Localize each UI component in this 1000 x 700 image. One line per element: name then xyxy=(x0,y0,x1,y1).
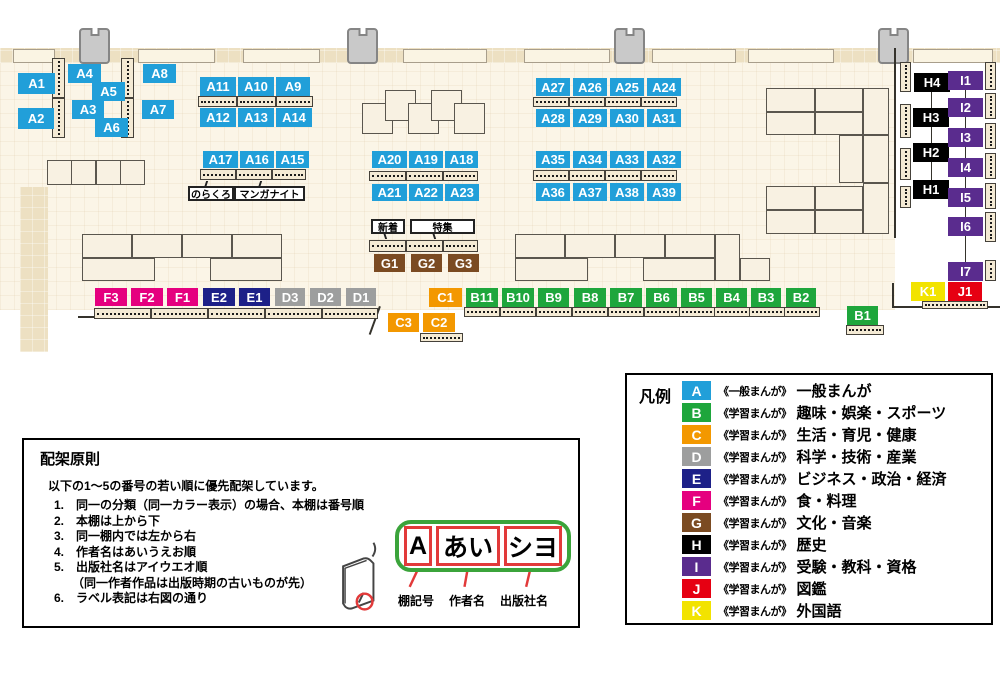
legend-series: 《学習まんが》 xyxy=(718,515,792,531)
shelf-unit xyxy=(369,171,406,181)
shelf-block xyxy=(82,234,132,258)
legend-series: 《学習まんが》 xyxy=(718,405,792,421)
shelf-chip-B6: B6 xyxy=(646,288,677,307)
shelf-chip-A37: A37 xyxy=(573,183,607,201)
map-callout: 特集 xyxy=(410,219,475,234)
shelf-unit xyxy=(276,96,313,107)
shelf-chip-A1: A1 xyxy=(18,73,55,94)
shelf-chip-A35: A35 xyxy=(536,151,570,168)
shelf-chip-I5: I5 xyxy=(948,188,983,207)
shelf-chip-H2: H2 xyxy=(913,143,949,162)
shelf-chip-B9: B9 xyxy=(538,288,569,307)
shelf-chip-A28: A28 xyxy=(536,109,570,127)
shelf-unit xyxy=(322,308,378,319)
legend-item-F: F《学習まんが》食・料理 xyxy=(682,491,947,510)
shelf-chip-C3: C3 xyxy=(388,313,419,332)
map-callout: のらくろ xyxy=(188,186,234,201)
shelf-unit xyxy=(846,325,884,335)
legend-chip-D: D xyxy=(682,447,711,466)
shelf-block xyxy=(815,186,863,210)
shelf-block xyxy=(515,258,588,281)
spine-label-box: あい xyxy=(436,526,500,566)
shelf-unit xyxy=(369,240,406,252)
shelf-unit xyxy=(236,169,272,180)
shelf-chip-A31: A31 xyxy=(647,109,681,127)
principle-item: 2. 本棚は上から下 xyxy=(54,514,364,530)
legend-chip-A: A xyxy=(682,381,711,400)
shelf-chip-A12: A12 xyxy=(200,108,236,127)
shelf-block xyxy=(839,135,863,183)
legend-category: 文化・音楽 xyxy=(797,512,872,533)
shelf-chip-A10: A10 xyxy=(238,77,274,96)
shelf-chip-A36: A36 xyxy=(536,183,570,201)
shelf-unit xyxy=(569,97,605,107)
legend-chip-G: G xyxy=(682,513,711,532)
shelf-chip-G2: G2 xyxy=(411,254,442,272)
principles-title: 配架原則 xyxy=(40,448,100,469)
shelf-chip-I2: I2 xyxy=(948,98,983,117)
shelf-block xyxy=(715,234,740,281)
shelf-chip-D1: D1 xyxy=(346,288,376,306)
shelf-chip-B11: B11 xyxy=(466,288,498,307)
shelf-chip-I7: I7 xyxy=(948,262,983,281)
shelf-chip-B7: B7 xyxy=(610,288,642,307)
shelf-unit xyxy=(985,93,996,119)
shelf-block xyxy=(232,234,282,258)
principles-box: 配架原則 以下の1～5の番号の若い順に優先配架しています。 1. 同一の分類（同… xyxy=(22,438,580,628)
shelf-block xyxy=(863,135,889,183)
pillar xyxy=(79,28,110,64)
shelf-unit xyxy=(420,333,463,342)
shelf-chip-I1: I1 xyxy=(948,71,983,90)
shelf-chip-A23: A23 xyxy=(445,184,479,201)
shelf-unit xyxy=(265,308,322,319)
principle-item: 1. 同一の分類（同一カラー表示）の場合、本棚は番号順 xyxy=(54,498,364,514)
legend-series: 《学習まんが》 xyxy=(718,449,792,465)
label-annotation: 出版社名 xyxy=(500,592,548,609)
shelf-unit xyxy=(679,307,715,317)
shelf-chip-A32: A32 xyxy=(647,151,681,168)
label-annotation: 作者名 xyxy=(449,592,485,609)
legend-category: 受験・教科・資格 xyxy=(797,556,917,577)
shelf-block xyxy=(132,234,182,258)
shelf-chip-A14: A14 xyxy=(276,108,312,127)
label-annotations: 棚記号作者名出版社名 xyxy=(398,592,548,609)
legend-rows: A《一般まんが》一般まんがB《学習まんが》趣味・娯楽・スポーツC《学習まんが》生… xyxy=(682,381,947,620)
shelf-chip-D3: D3 xyxy=(275,288,305,306)
principles-list: 1. 同一の分類（同一カラー表示）の場合、本棚は番号順2. 本棚は上から下3. … xyxy=(54,498,364,607)
legend-item-H: H《学習まんが》歴史 xyxy=(682,535,947,554)
shelf-chip-A17: A17 xyxy=(203,151,238,168)
legend-category: 外国語 xyxy=(797,600,842,621)
shelf-chip-A34: A34 xyxy=(573,151,607,168)
legend-series: 《学習まんが》 xyxy=(718,471,792,487)
shelf-chip-A24: A24 xyxy=(647,78,681,96)
shelf-chip-H3: H3 xyxy=(913,108,949,127)
shelf-chip-A11: A11 xyxy=(200,77,236,96)
shelf-chip-E1: E1 xyxy=(239,288,270,306)
legend-item-G: G《学習まんが》文化・音楽 xyxy=(682,513,947,532)
pillar xyxy=(614,28,645,64)
shelf-chip-I4: I4 xyxy=(948,158,983,177)
spine-label: Aあいシヨ xyxy=(395,520,571,572)
shelf-block xyxy=(515,234,565,258)
shelf-unit xyxy=(985,153,996,179)
shelf-unit xyxy=(605,170,641,181)
shelf-block xyxy=(182,234,232,258)
principle-item: 5. 出版社名はアイウエオ順 xyxy=(54,560,364,576)
legend-chip-B: B xyxy=(682,403,711,422)
legend-category: 歴史 xyxy=(797,534,827,555)
shelf-unit xyxy=(533,170,569,181)
legend-category: 図鑑 xyxy=(797,578,827,599)
shelf-chip-A39: A39 xyxy=(647,183,681,201)
legend-chip-H: H xyxy=(682,535,711,554)
shelf-unit xyxy=(406,240,443,252)
shelf-unit xyxy=(443,171,478,181)
shelf-block xyxy=(210,258,282,281)
shelf-unit xyxy=(644,307,680,317)
shelf-chip-A16: A16 xyxy=(240,151,274,168)
shelf-chip-B8: B8 xyxy=(574,288,606,307)
shelf-unit xyxy=(900,186,911,208)
legend-chip-I: I xyxy=(682,557,711,576)
shelf-chip-B4: B4 xyxy=(716,288,747,307)
shelf-chip-A4: A4 xyxy=(68,64,101,83)
shelf-chip-C2: C2 xyxy=(423,313,455,332)
legend-category: 生活・育児・健康 xyxy=(797,424,917,445)
shelf-unit xyxy=(749,307,785,317)
shelf-block xyxy=(82,258,155,281)
shelf-unit xyxy=(985,260,996,281)
shelf-block xyxy=(815,112,863,135)
shelf-block xyxy=(454,103,485,134)
shelf-chip-I3: I3 xyxy=(948,128,983,147)
shelf-block xyxy=(766,112,815,135)
shelf-chip-A20: A20 xyxy=(372,151,407,168)
shelf-chip-B1: B1 xyxy=(847,306,878,325)
shelf-chip-A18: A18 xyxy=(445,151,478,168)
wall-line xyxy=(78,316,95,318)
legend-chip-J: J xyxy=(682,579,711,598)
spine-label-box: シヨ xyxy=(504,526,562,566)
shelf-unit xyxy=(985,123,996,149)
shelf-chip-A27: A27 xyxy=(536,78,570,96)
shelf-unit xyxy=(900,104,911,138)
wall-line xyxy=(894,48,896,238)
legend-item-K: K《学習まんが》外国語 xyxy=(682,601,947,620)
shelf-block xyxy=(643,258,715,281)
legend-box: 凡例 A《一般まんが》一般まんがB《学習まんが》趣味・娯楽・スポーツC《学習まん… xyxy=(625,373,993,625)
shelf-block xyxy=(863,183,889,234)
shelf-chip-C1: C1 xyxy=(429,288,462,307)
wall-line xyxy=(892,283,894,308)
shelf-chip-A30: A30 xyxy=(610,109,644,127)
shelf-unit xyxy=(536,307,572,317)
shelf-chip-A6: A6 xyxy=(95,118,128,137)
doorway xyxy=(13,49,55,63)
wall-line xyxy=(931,82,932,192)
shelf-unit xyxy=(533,97,569,107)
shelf-unit xyxy=(608,307,644,317)
legend-chip-C: C xyxy=(682,425,711,444)
shelf-block xyxy=(71,160,96,185)
shelf-unit xyxy=(237,96,276,107)
shelf-block xyxy=(665,234,715,258)
shelf-chip-A8: A8 xyxy=(143,64,176,83)
doorway xyxy=(524,49,610,63)
map-callout: 新着 xyxy=(371,219,405,234)
doorway xyxy=(138,49,215,63)
legend-chip-E: E xyxy=(682,469,711,488)
shelf-unit xyxy=(900,62,911,92)
wall-band xyxy=(20,187,48,352)
shelf-unit xyxy=(985,62,996,90)
shelf-unit xyxy=(985,212,996,242)
shelf-unit xyxy=(200,169,236,180)
shelf-chip-D2: D2 xyxy=(310,288,341,306)
shelf-chip-G1: G1 xyxy=(374,254,405,272)
shelf-unit xyxy=(922,301,988,309)
shelf-block xyxy=(565,234,615,258)
shelf-unit xyxy=(641,97,677,107)
shelf-chip-A21: A21 xyxy=(372,184,407,201)
shelf-block xyxy=(47,160,72,185)
legend-series: 《学習まんが》 xyxy=(718,427,792,443)
legend-item-B: B《学習まんが》趣味・娯楽・スポーツ xyxy=(682,403,947,422)
legend-chip-K: K xyxy=(682,601,711,620)
shelf-block xyxy=(815,210,863,234)
legend-category: 趣味・娯楽・スポーツ xyxy=(797,402,947,423)
principle-item: 4. 作者名はあいうえお順 xyxy=(54,545,364,561)
doorway xyxy=(748,49,834,63)
shelf-chip-A15: A15 xyxy=(276,151,309,168)
shelf-unit xyxy=(198,96,237,107)
legend-series: 《学習まんが》 xyxy=(718,581,792,597)
shelf-block xyxy=(766,186,815,210)
shelf-unit xyxy=(151,308,208,319)
shelf-chip-A22: A22 xyxy=(409,184,443,201)
legend-series: 《学習まんが》 xyxy=(718,603,792,619)
shelf-chip-B3: B3 xyxy=(751,288,781,307)
shelf-block xyxy=(615,234,665,258)
legend-series: 《学習まんが》 xyxy=(718,537,792,553)
legend-category: ビジネス・政治・経済 xyxy=(797,468,947,489)
shelf-chip-I6: I6 xyxy=(948,217,983,236)
shelf-chip-F1: F1 xyxy=(167,288,198,306)
pillar xyxy=(347,28,378,64)
shelf-block xyxy=(120,160,145,185)
legend-title: 凡例 xyxy=(639,383,671,407)
legend-item-C: C《学習まんが》生活・育児・健康 xyxy=(682,425,947,444)
shelf-block xyxy=(766,88,815,112)
shelf-unit xyxy=(572,307,608,317)
shelf-chip-B5: B5 xyxy=(681,288,712,307)
principle-item: 3. 同一棚内では左から右 xyxy=(54,529,364,545)
legend-category: 一般まんが xyxy=(797,380,872,401)
legend-series: 《学習まんが》 xyxy=(718,559,792,575)
shelf-unit xyxy=(208,308,265,319)
shelf-chip-B2: B2 xyxy=(786,288,816,307)
doorway xyxy=(243,49,320,63)
shelf-chip-F2: F2 xyxy=(131,288,163,306)
shelf-chip-H4: H4 xyxy=(914,73,950,92)
shelf-chip-A9: A9 xyxy=(276,77,310,96)
legend-series: 《一般まんが》 xyxy=(718,383,792,399)
doorway xyxy=(403,49,487,63)
pointer-lines xyxy=(410,570,530,587)
shelf-chip-E2: E2 xyxy=(203,288,235,306)
shelf-unit xyxy=(784,307,820,317)
legend-category: 食・料理 xyxy=(797,490,857,511)
shelf-chip-B10: B10 xyxy=(502,288,534,307)
shelf-chip-A13: A13 xyxy=(238,108,274,127)
shelf-chip-A2: A2 xyxy=(18,108,54,129)
shelf-chip-A7: A7 xyxy=(142,100,174,119)
shelf-block xyxy=(96,160,121,185)
shelf-chip-J1: J1 xyxy=(948,282,982,301)
shelf-chip-H1: H1 xyxy=(913,180,949,199)
shelf-unit xyxy=(500,307,536,317)
spine-label-box: A xyxy=(404,526,432,566)
shelf-chip-F3: F3 xyxy=(95,288,127,306)
shelf-chip-A38: A38 xyxy=(610,183,644,201)
legend-item-E: E《学習まんが》ビジネス・政治・経済 xyxy=(682,469,947,488)
shelf-block xyxy=(815,88,863,112)
shelf-unit xyxy=(605,97,641,107)
shelf-unit xyxy=(443,240,478,252)
legend-item-J: J《学習まんが》図鑑 xyxy=(682,579,947,598)
map-callout: マンガナイト xyxy=(234,186,305,201)
shelf-unit xyxy=(641,170,677,181)
principles-intro: 以下の1～5の番号の若い順に優先配架しています。 xyxy=(48,477,324,494)
shelf-block xyxy=(740,258,770,281)
shelf-chip-A33: A33 xyxy=(610,151,644,168)
shelf-unit xyxy=(569,170,605,181)
shelf-chip-A29: A29 xyxy=(573,109,607,127)
shelf-chip-A25: A25 xyxy=(610,78,644,96)
doorway xyxy=(913,49,993,63)
principle-item: 6. ラベル表記は右図の通り xyxy=(54,591,364,607)
shelf-block xyxy=(863,88,889,135)
shelf-chip-K1: K1 xyxy=(911,282,945,301)
shelf-unit xyxy=(406,171,443,181)
shelf-unit xyxy=(94,308,151,319)
shelf-unit xyxy=(464,307,500,317)
label-annotation: 棚記号 xyxy=(398,592,434,609)
legend-item-D: D《学習まんが》科学・技術・産業 xyxy=(682,447,947,466)
doorway xyxy=(652,49,736,63)
legend-item-I: I《学習まんが》受験・教科・資格 xyxy=(682,557,947,576)
legend-category: 科学・技術・産業 xyxy=(797,446,917,467)
shelf-unit xyxy=(985,183,996,209)
legend-series: 《学習まんが》 xyxy=(718,493,792,509)
store-floor-map: A1A2A4A5A3A6A8A7A11A10A9A12A13A14A17A16A… xyxy=(0,0,1000,700)
shelf-unit xyxy=(272,169,306,180)
principle-item: （同一作者作品は出版時期の古いものが先） xyxy=(54,576,364,592)
shelf-block xyxy=(766,210,815,234)
shelf-unit xyxy=(714,307,750,317)
shelf-chip-G3: G3 xyxy=(448,254,479,272)
shelf-chip-A5: A5 xyxy=(92,82,125,101)
legend-item-A: A《一般まんが》一般まんが xyxy=(682,381,947,400)
shelf-chip-A19: A19 xyxy=(409,151,443,168)
legend-chip-F: F xyxy=(682,491,711,510)
shelf-unit xyxy=(900,148,911,180)
shelf-chip-A26: A26 xyxy=(573,78,607,96)
shelf-chip-A3: A3 xyxy=(72,100,104,119)
